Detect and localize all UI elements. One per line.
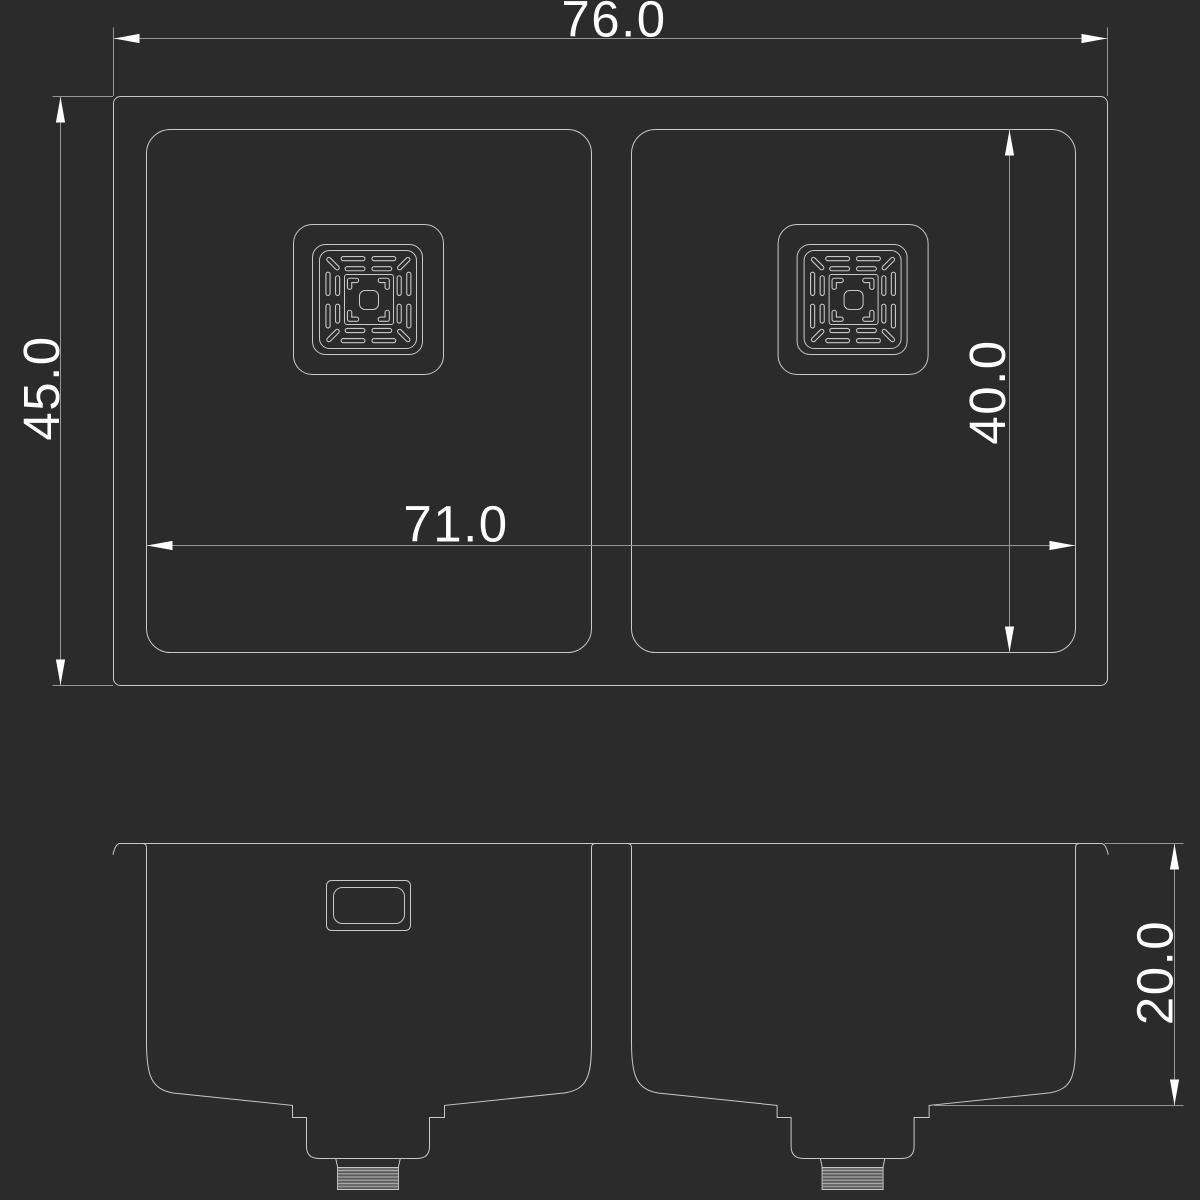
svg-text:20.0: 20.0 [1127, 920, 1184, 1025]
svg-text:40.0: 40.0 [959, 339, 1016, 444]
svg-text:76.0: 76.0 [561, 0, 666, 48]
svg-text:71.0: 71.0 [403, 496, 508, 553]
svg-text:45.0: 45.0 [13, 335, 70, 440]
